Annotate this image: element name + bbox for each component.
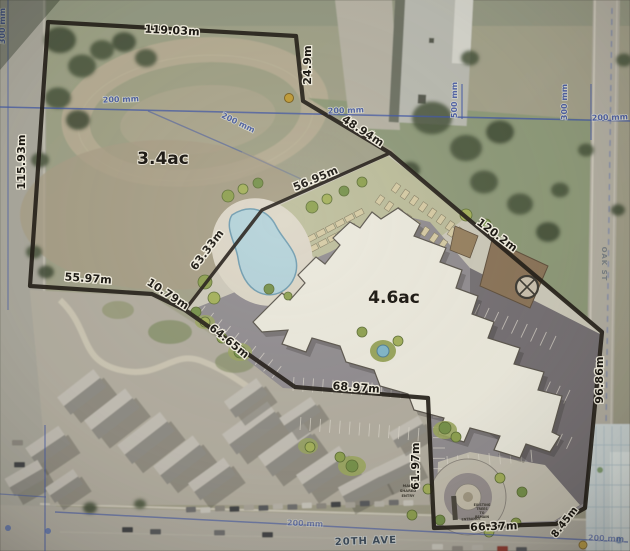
util-300mm: 300 mm xyxy=(560,84,569,120)
wheel-feature xyxy=(516,276,538,298)
dim-66-37m: 66.37m xyxy=(470,519,518,534)
dim-96-86m: 96.86m xyxy=(593,356,606,403)
street-oak-st: OAK ST xyxy=(600,247,608,282)
svg-text:MAIN: MAIN xyxy=(403,484,414,488)
util-500mm: 500 mm xyxy=(450,82,459,118)
util-200mm-c: 200 mm xyxy=(592,112,628,122)
util-200mm-b: 200 mm xyxy=(328,105,364,115)
svg-text:REMAIN: REMAIN xyxy=(475,515,489,519)
dim-61-97m: 61.97m xyxy=(409,442,422,489)
survey-marker xyxy=(285,94,294,103)
parcel-area-left: 3.4ac xyxy=(137,149,189,169)
util-200mm-bottom: 200 mm xyxy=(287,518,323,528)
street-20th-ave: 20TH AVE xyxy=(335,535,398,548)
site-plan-photo: 3.4ac 4.6ac 119.03m 24.9m 48.94m 56.95m … xyxy=(0,0,630,551)
dim-24-9m: 24.9m xyxy=(301,45,314,85)
util-200mm-bottom-right: 200 mm xyxy=(588,533,624,543)
svg-text:SHARED: SHARED xyxy=(400,489,417,493)
dim-115-93m: 115.93m xyxy=(15,134,28,189)
fountain xyxy=(377,345,389,357)
aerial-site-plan-map: 3.4ac 4.6ac 119.03m 24.9m 48.94m 56.95m … xyxy=(0,0,630,551)
util-200mm-a: 200 mm xyxy=(103,94,139,104)
parcel-area-right: 4.6ac xyxy=(368,288,420,308)
svg-text:ENTRY: ENTRY xyxy=(401,494,414,498)
survey-marker-2 xyxy=(579,541,587,549)
